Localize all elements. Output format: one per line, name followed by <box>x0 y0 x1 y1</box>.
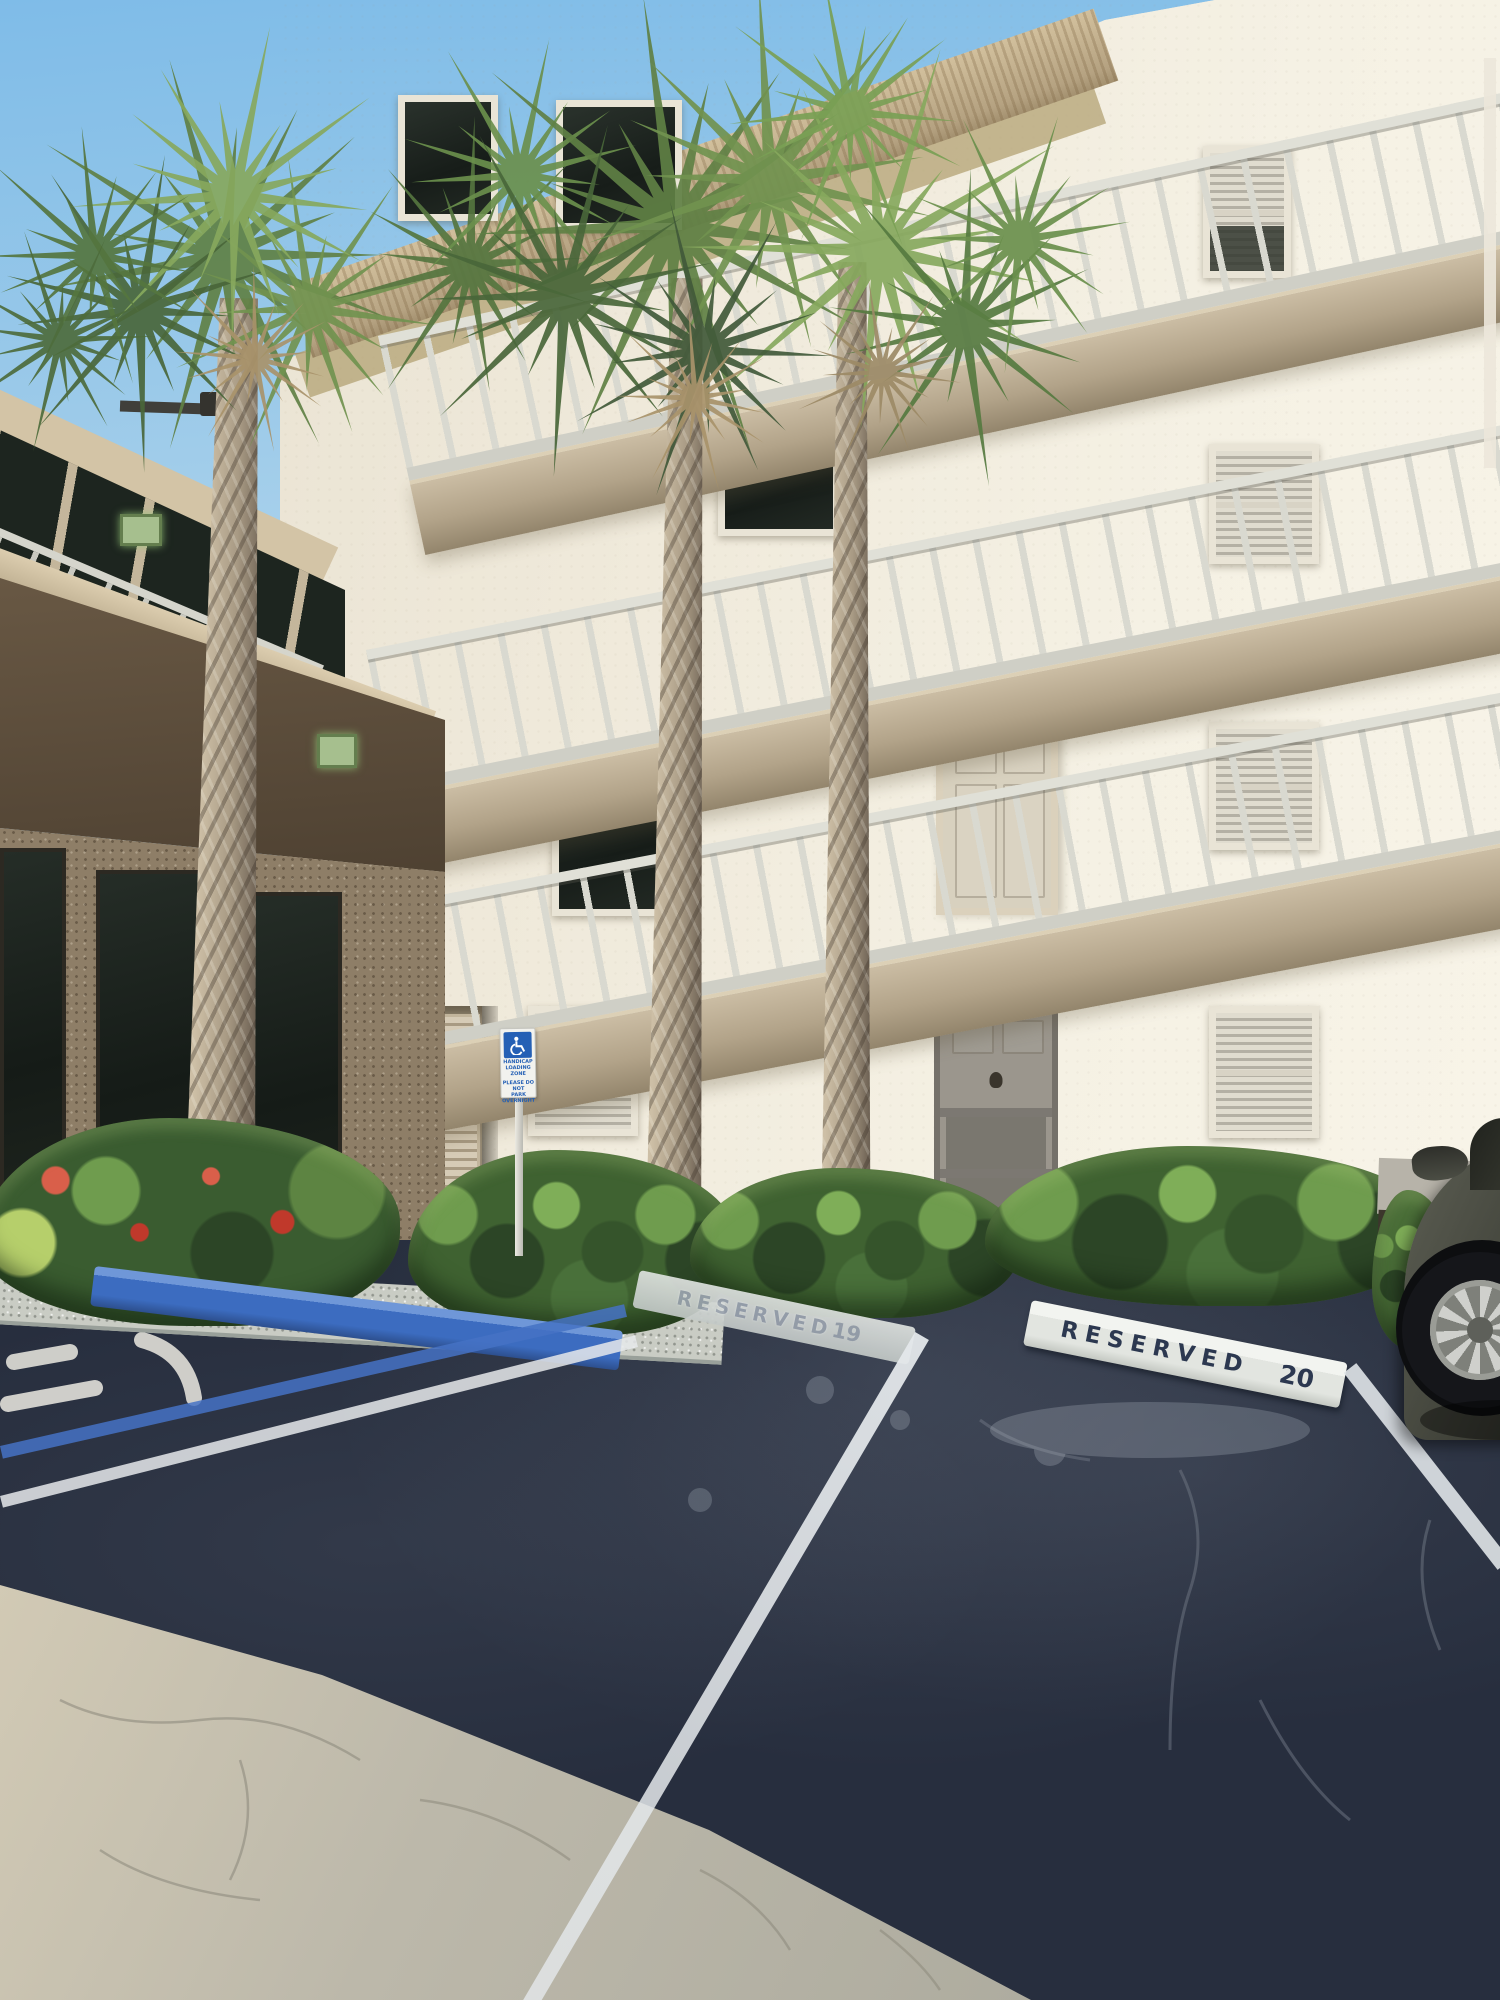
ground-markings <box>0 0 1500 2000</box>
alloy-rim <box>1430 1280 1500 1380</box>
sign-line-3: PLEASE DO NOT <box>501 1080 535 1093</box>
asphalt-cracks-light <box>60 1700 940 1990</box>
asphalt-cracks-dark <box>980 1420 1440 1820</box>
stall-number-19: 19 <box>830 1318 864 1347</box>
asphalt-speckle <box>688 1376 1310 1512</box>
wheelchair-icon <box>503 1032 531 1058</box>
handicap-parking-sign: HANDICAP LOADING ZONE PLEASE DO NOT PARK… <box>499 1028 536 1099</box>
sign-line-4: PARK OVERNIGHT <box>502 1092 536 1105</box>
stall-number-20: 20 <box>1277 1359 1317 1394</box>
condo-building-photo: 207 107 <box>0 0 1500 2000</box>
sign-post <box>515 1096 523 1256</box>
handicap-stencil <box>8 1340 194 1404</box>
sign-line-2: LOADING ZONE <box>501 1065 535 1078</box>
